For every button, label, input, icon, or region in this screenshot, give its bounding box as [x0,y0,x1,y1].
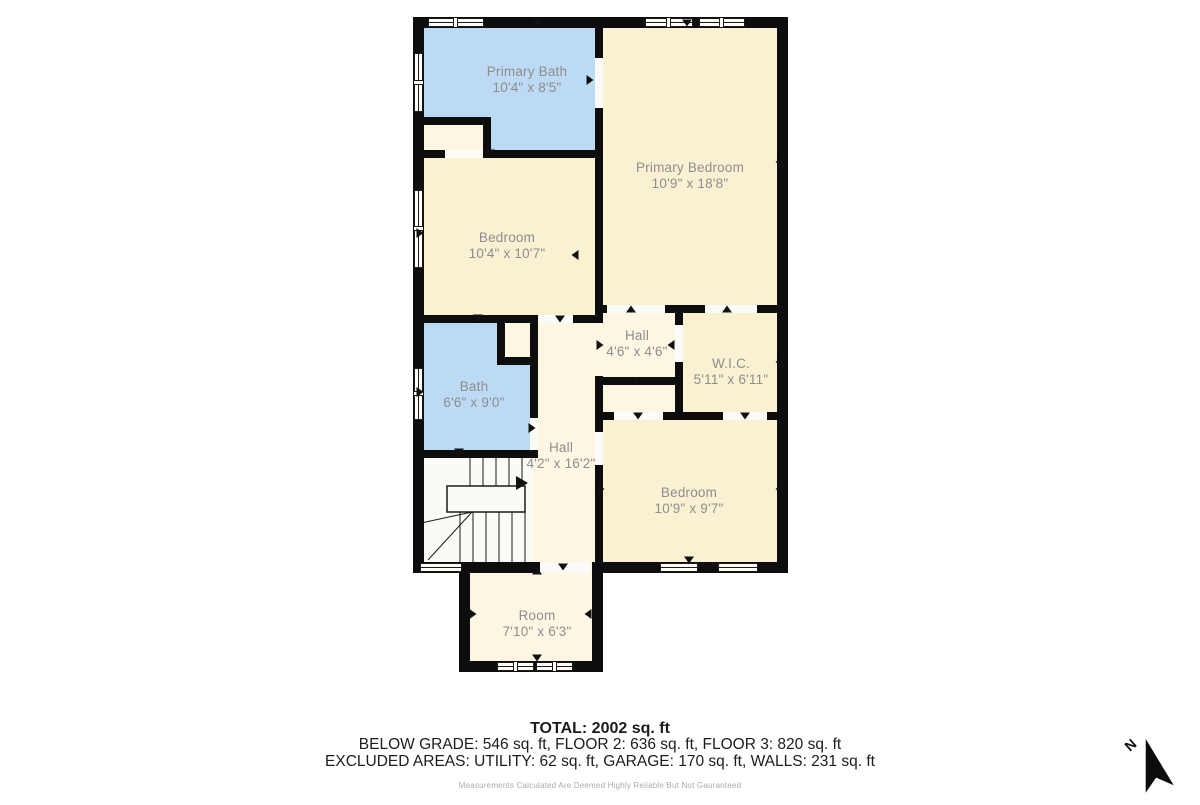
direction-marker [470,609,477,619]
wall-segment [413,450,538,458]
direction-marker [587,75,594,85]
room-dims: 10'9" x 9'7" [655,501,724,517]
wall-segment [683,412,723,420]
wall-segment [665,305,705,313]
room-dims: 4'2" x 16'2" [527,456,596,472]
window [497,662,534,671]
wall-segment [767,412,788,420]
window [420,563,462,572]
room-label-bath: Bath 6'6" x 9'0" [443,379,504,411]
direction-marker [454,449,464,456]
floor-breakdown-text: BELOW GRADE: 546 sq. ft, FLOOR 2: 636 sq… [0,737,1200,754]
wall-segment [595,412,614,420]
direction-marker [558,564,568,571]
room-dims: 4'6" x 4'6" [606,344,667,360]
direction-marker [532,655,542,662]
door-opening [607,305,665,313]
wall-segment [595,465,603,562]
room-dims: 10'4" x 10'7" [469,246,546,262]
room-name: Bath [443,379,504,395]
direction-marker [417,387,424,397]
direction-marker [684,557,694,564]
direction-marker [485,150,495,157]
room-label-bedroom-mid: Bedroom 10'4" x 10'7" [469,230,546,262]
area-summary: TOTAL: 2002 sq. ft BELOW GRADE: 546 sq. … [0,720,1200,790]
floorplan-canvas: Primary Bath 10'4" x 8'5" Primary Bedroo… [0,0,1200,805]
room-label-hall-small: Hall 4'6" x 4'6" [606,328,667,360]
direction-marker [473,315,483,322]
direction-marker [632,378,642,385]
direction-marker [598,484,605,494]
direction-marker [532,568,542,575]
north-label: N [1121,736,1139,755]
room-dims: 6'6" x 9'0" [443,395,504,411]
wall-segment [663,412,683,420]
room-name: Primary Bath [487,64,567,80]
room-name: Bedroom [469,230,546,246]
room-label-wic: W.I.C. 5'11" x 6'11" [694,356,769,388]
window [718,563,758,572]
wall-segment [413,150,445,158]
window [536,662,573,671]
direction-marker [776,484,783,494]
wall-segment [530,315,538,418]
direction-marker [668,340,675,350]
disclaimer-text: Measurements Calculated Are Deemed Highl… [0,781,1200,790]
wall-segment [595,28,603,58]
wall-segment [675,313,683,325]
room-name: Primary Bedroom [636,160,744,176]
direction-marker [572,250,579,260]
room-label-primary-bedroom: Primary Bedroom 10'9" x 18'8" [636,160,744,192]
window [414,53,423,112]
direction-marker [740,413,750,420]
window [660,563,698,572]
room-dims: 10'4" x 8'5" [487,80,567,96]
room-dims: 7'10" x 6'3" [503,624,572,640]
room-label-room: Room 7'10" x 6'3" [503,608,572,640]
direction-marker [532,20,542,27]
direction-marker [776,357,783,367]
direction-marker [555,316,565,323]
direction-marker [682,20,692,27]
door-opening [445,150,483,158]
room-dims: 10'9" x 18'8" [636,176,744,192]
excluded-areas-text: EXCLUDED AREAS: UTILITY: 62 sq. ft, GARA… [0,754,1200,771]
wall-segment [421,117,491,125]
wall-segment [592,562,603,672]
total-area-text: TOTAL: 2002 sq. ft [0,720,1200,737]
staircase [421,458,533,570]
direction-marker [597,340,604,350]
door-opening [535,315,573,323]
room-name: W.I.C. [694,356,769,372]
wall-segment [595,108,603,316]
room-dims: 5'11" x 6'11" [694,372,769,388]
room-name: Room [503,608,572,624]
direction-marker [585,609,592,619]
door-opening [675,325,683,362]
room-name: Hall [606,328,667,344]
floor-plan [0,0,1200,805]
wall-segment [459,562,470,672]
direction-marker [633,413,643,420]
direction-marker [626,306,636,313]
direction-marker [417,228,424,238]
direction-marker [776,157,783,167]
door-opening [595,432,603,465]
room-label-primary-bath: Primary Bath 10'4" x 8'5" [487,64,567,96]
direction-marker [417,179,424,189]
wall-segment [483,150,595,158]
window [428,18,484,27]
room-name: Hall [527,440,596,456]
door-opening [595,58,603,108]
direction-marker [722,306,732,313]
direction-marker [529,423,536,433]
north-arrow-icon: N [1120,726,1190,805]
window [699,18,745,27]
room-label-bedroom-lower: Bedroom 10'9" x 9'7" [655,485,724,517]
wall-segment [757,305,782,313]
room-label-hall-corridor: Hall 4'2" x 16'2" [527,440,596,472]
wall-segment [595,305,607,313]
room-name: Bedroom [655,485,724,501]
wall-segment [573,315,603,323]
